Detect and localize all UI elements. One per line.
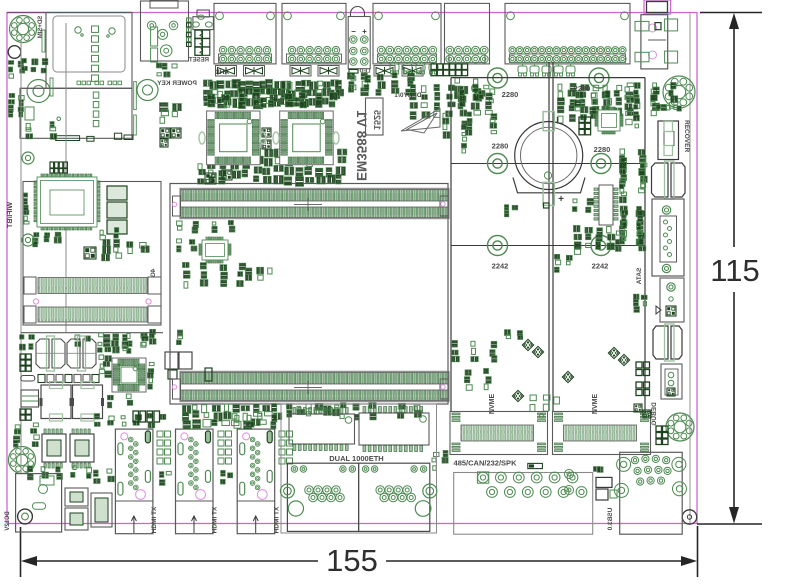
svg-text:DC12V: DC12V (5, 511, 11, 530)
svg-text:POWER KEY: POWER KEY (156, 80, 196, 87)
svg-text:EM3588 V1: EM3588 V1 (354, 110, 369, 181)
svg-text:+: + (558, 194, 564, 205)
svg-text:DUAL 1000ETH: DUAL 1000ETH (329, 454, 383, 463)
svg-text:115: 115 (710, 253, 759, 288)
svg-text:RECOVER: RECOVER (683, 120, 690, 152)
svg-text:4G: 4G (150, 269, 157, 278)
svg-text:2280: 2280 (594, 145, 611, 154)
svg-text:485/CAN/232/SPK: 485/CAN/232/SPK (454, 459, 518, 468)
svg-text:2280: 2280 (492, 142, 509, 151)
svg-text:1525: 1525 (372, 110, 382, 130)
svg-text:2242: 2242 (592, 262, 609, 271)
svg-text:+: + (362, 27, 367, 36)
svg-text:SATA: SATA (636, 268, 643, 285)
svg-text:HDMI TX: HDMI TX (212, 506, 219, 533)
svg-text:2280: 2280 (502, 90, 519, 99)
svg-text:DEBUG: DEBUG (651, 402, 658, 425)
svg-text:SD+SIM: SD+SIM (38, 16, 44, 39)
svg-text:RESET: RESET (189, 58, 209, 64)
svg-text:HDMI TX: HDMI TX (151, 506, 158, 533)
svg-text:HDMI TX: HDMI TX (274, 506, 281, 533)
svg-text:−: − (351, 27, 356, 36)
svg-text:2242: 2242 (492, 262, 509, 271)
svg-text:155: 155 (326, 543, 378, 578)
svg-text:USB3.0: USB3.0 (607, 508, 614, 531)
svg-text:WIFI/BT: WIFI/BT (7, 202, 14, 229)
